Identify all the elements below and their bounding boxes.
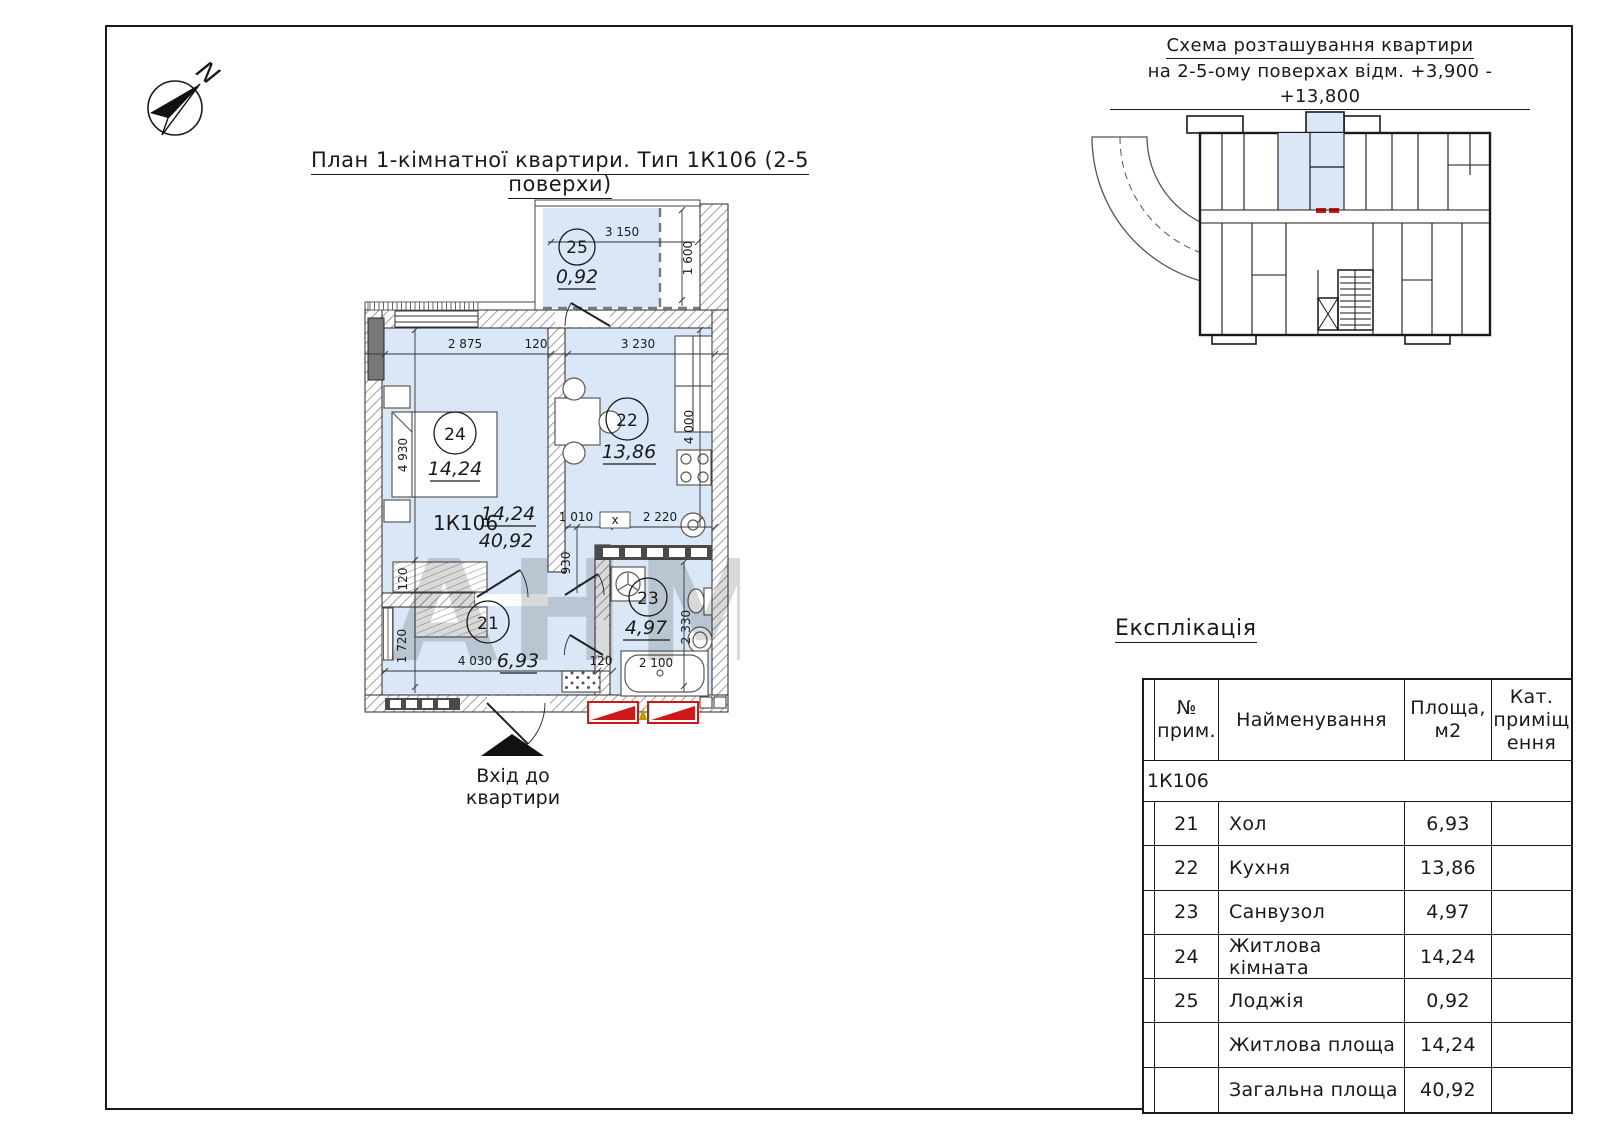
highlighted-loggia [1306, 112, 1344, 133]
dim-left-b: 1 720 [395, 629, 409, 663]
room24-area: 14,24 [428, 458, 482, 480]
apartment-total-area: 40,92 [479, 530, 533, 552]
entrance-arrow-icon [481, 734, 544, 756]
room21-number: 21 [477, 614, 499, 634]
dim-tub-length: 2 100 [639, 656, 673, 670]
north-compass: N [140, 55, 240, 150]
table-row: 23 Санвузол 4,97 [1144, 891, 1571, 935]
dim-top-b: 120 [525, 337, 548, 351]
dim-left-a: 120 [396, 568, 410, 591]
dining-table [555, 398, 600, 445]
dim-mid-x: х [611, 513, 618, 527]
schema-title-line1: Схема розташування квартири [1166, 33, 1473, 59]
table-row: 24 Житлова кімната 14,24 [1144, 935, 1571, 979]
room21-area: 6,93 [497, 650, 539, 672]
highlighted-apartment [1278, 133, 1344, 213]
table-row-grand-total: Загальна площа 40,92 [1144, 1068, 1571, 1112]
dim-loggia-width: 3 150 [605, 225, 639, 239]
curved-wing [1092, 137, 1216, 281]
dim-hall-t: 120 [590, 654, 613, 668]
nightstand [384, 386, 410, 408]
dim-hall-width: 4 030 [458, 654, 492, 668]
dim-mid-a: 1 010 [559, 510, 593, 524]
header-area: Площа, м2 [1405, 680, 1492, 760]
room23-area: 4,97 [625, 617, 667, 639]
chair [563, 378, 585, 400]
building-location-schema [1060, 105, 1505, 350]
room25-number: 25 [566, 238, 588, 258]
header-cat: Кат. приміщ ення [1492, 680, 1571, 760]
dim-mid-b: 2 220 [643, 510, 677, 524]
entrance-label-line1: Вхід до [476, 765, 550, 787]
room22-number: 22 [616, 411, 638, 431]
table-group-row: 1К106 [1144, 761, 1571, 802]
dim-corridor: 930 [559, 552, 573, 575]
explication-table: № прим. Найменування Площа, м2 Кат. прим… [1142, 678, 1573, 1114]
table-row: 25 Лоджія 0,92 [1144, 979, 1571, 1023]
dim-top-c: 3 230 [621, 337, 655, 351]
room24-number: 24 [444, 425, 466, 445]
explication-title: Експлікація [1115, 616, 1257, 641]
room22-area: 13,86 [602, 441, 656, 463]
group-label: 1К106 [1147, 770, 1209, 792]
entrance-label-line2: квартири [466, 787, 560, 809]
header-num: № прим. [1155, 680, 1219, 760]
table-row-living-total: Житлова площа 14,24 [1144, 1023, 1571, 1067]
entrance: Вхід до квартири [466, 734, 560, 809]
room25-area: 0,92 [556, 266, 598, 288]
schema-title: Схема розташування квартири на 2-5-ому п… [1110, 33, 1530, 110]
dim-bath-depth: 2 330 [679, 610, 693, 644]
dim-room24-depth: 4 930 [396, 438, 410, 472]
north-label: N [190, 56, 224, 91]
schema-title-line2: на 2-5-ому поверхах відм. +3,900 - +13,8… [1110, 59, 1530, 110]
plan-title: План 1-кімнатної квартири. Тип 1К106 (2-… [260, 148, 860, 196]
table-row: 21 Хол 6,93 [1144, 802, 1571, 846]
table-row: 22 Кухня 13,86 [1144, 846, 1571, 890]
dim-room22-depth: 4 000 [682, 410, 696, 444]
dim-loggia-depth: 1 600 [681, 241, 695, 275]
table-header-row: № прим. Найменування Площа, м2 Кат. прим… [1144, 680, 1571, 761]
dim-top-a: 2 875 [448, 337, 482, 351]
header-strip [1144, 680, 1155, 760]
header-name: Найменування [1219, 680, 1405, 760]
floor-plan: АНМ 3 150 1 600 2 875 120 3 230 4 930 12… [360, 190, 740, 830]
nightstand [384, 500, 410, 522]
room23-number: 23 [637, 589, 659, 609]
apartment-living-area: 14,24 [481, 503, 535, 525]
chair [563, 442, 585, 464]
